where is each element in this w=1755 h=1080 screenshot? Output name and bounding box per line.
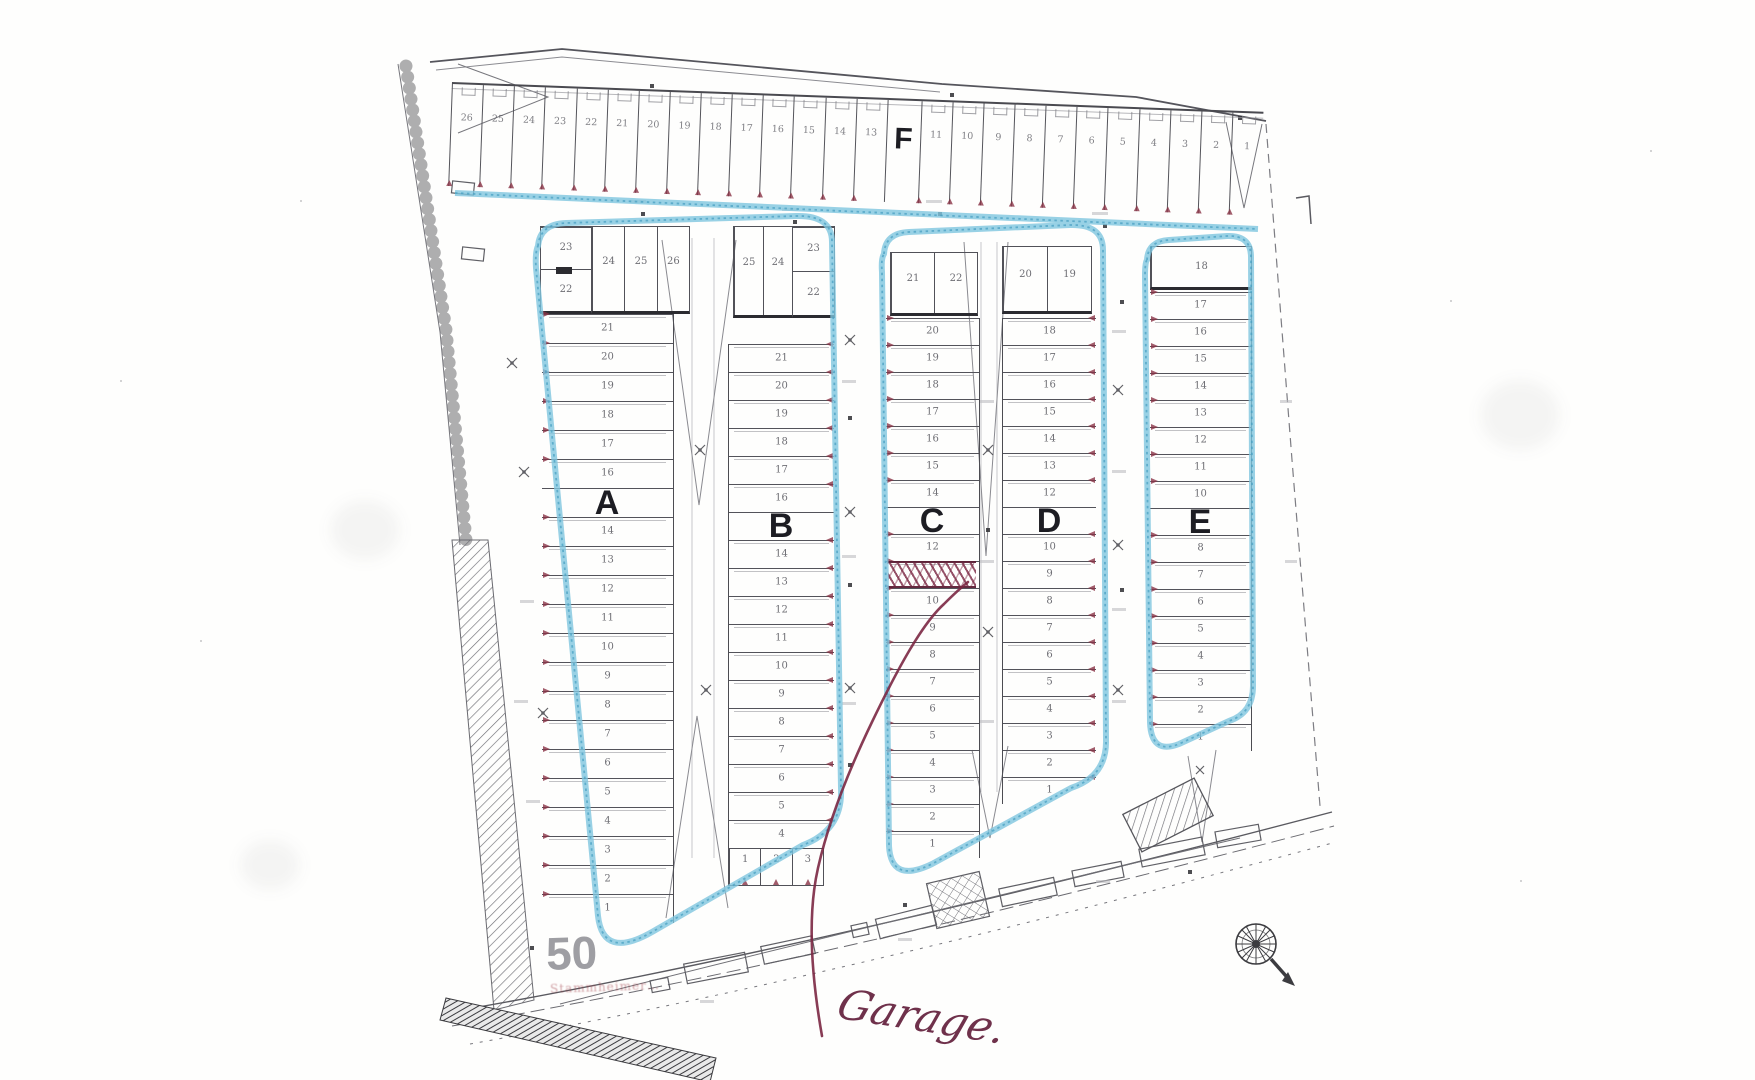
- stall-number: 7: [886, 677, 979, 688]
- parking-stall-row: 9: [1003, 561, 1096, 588]
- stall-number: 15: [1003, 407, 1096, 418]
- parking-stall-row: 8: [729, 708, 834, 736]
- parking-stall-row: 2: [886, 804, 979, 831]
- stall-number: 2: [1003, 758, 1096, 769]
- block-label-f: F: [894, 122, 914, 157]
- parking-stall-row: 2: [1003, 750, 1096, 777]
- parking-stall-row: 6: [1150, 589, 1251, 616]
- block-d-label-row: D: [1003, 507, 1096, 534]
- parking-stall-row: 1: [1003, 777, 1096, 804]
- parking-stall: 13: [853, 99, 888, 202]
- stall-number: 8: [542, 700, 673, 711]
- parking-stall-row: 21: [542, 314, 673, 343]
- parking-stall-row: 9: [729, 680, 834, 708]
- stall-number: 5: [1003, 677, 1096, 688]
- parking-stall-row: 7: [542, 720, 673, 749]
- stall-number: 20: [638, 119, 669, 131]
- block-c-column: 20191817161514 C 1210987654321: [886, 318, 980, 858]
- block-a-label-row: A: [542, 488, 673, 517]
- stall-number: 2: [886, 812, 979, 823]
- parking-stall-row: 12: [886, 534, 979, 561]
- parking-stall-row: 5: [886, 723, 979, 750]
- parking-stall-row: 10: [729, 652, 834, 680]
- parking-stall-row: 7: [1003, 615, 1096, 642]
- stall-number: 4: [886, 758, 979, 769]
- block-c-label-row: C: [886, 507, 979, 534]
- stall-number: 15: [794, 125, 825, 137]
- stall-number: 5: [729, 800, 834, 811]
- parking-stall-row: 12: [1150, 427, 1251, 454]
- stall-number: 16: [763, 123, 794, 135]
- block-a-top: 2322 242526: [540, 226, 690, 314]
- stall-number: 14: [886, 488, 979, 499]
- block-a-rows-upper: 212019181716: [542, 314, 673, 488]
- parking-stall-row: 18: [1003, 318, 1096, 345]
- stall-number: 20: [542, 352, 673, 363]
- stall-number: 3: [886, 785, 979, 796]
- block-d-rows-upper: 18171615141312: [1003, 318, 1096, 507]
- parking-stall: 16: [759, 95, 794, 198]
- parking-stall-row: 17: [729, 456, 834, 484]
- parking-stall-row: 18: [542, 401, 673, 430]
- stall-number: 18: [729, 436, 834, 447]
- parking-stall-row: 2: [1150, 697, 1251, 724]
- stall-number: 5: [542, 787, 673, 798]
- stall-number: 3: [793, 854, 823, 865]
- parking-stall: 10: [949, 102, 984, 205]
- block-e-rows-lower: 87654321: [1150, 535, 1251, 751]
- stall-number: 4: [1139, 137, 1170, 149]
- parking-stall: 22: [793, 271, 834, 315]
- stall-number: 23: [545, 115, 576, 127]
- stall-number: 3: [542, 845, 673, 856]
- parking-stall: 24: [510, 86, 545, 189]
- parking-stall-row: 13: [542, 546, 673, 575]
- parking-stall-row: 6: [886, 696, 979, 723]
- stall-number: 12: [542, 584, 673, 595]
- stall-number: 13: [856, 127, 887, 139]
- parking-stall-row: 17: [886, 399, 979, 426]
- street-name-faint: Stammheimer…: [550, 978, 660, 996]
- parking-stall-row: 8: [1150, 535, 1251, 562]
- handwritten-garage-note: Garage.: [831, 980, 1014, 1053]
- parking-stall-row: 18: [886, 372, 979, 399]
- parking-stall: 6: [1073, 107, 1108, 210]
- parking-stall-row: 12: [729, 596, 834, 624]
- stall-number: 6: [1076, 135, 1107, 147]
- stall-number: 18: [886, 380, 979, 391]
- stall-number: 1: [1003, 785, 1096, 796]
- house-number: 50: [545, 925, 598, 981]
- stall-number: 17: [731, 122, 762, 134]
- stall-number: 18: [542, 410, 673, 421]
- stall-number: 15: [1150, 354, 1251, 365]
- stall-number: 25: [483, 113, 514, 125]
- parking-stall-row: 5: [729, 792, 834, 820]
- stall-number: 12: [729, 604, 834, 615]
- parking-stall: 9: [980, 103, 1015, 206]
- parking-stall: 22: [541, 269, 591, 311]
- parking-stall-row: 11: [542, 604, 673, 633]
- parking-stall-row: 14: [1003, 426, 1096, 453]
- stall-number: 19: [542, 381, 673, 392]
- parking-stall: 5: [1104, 108, 1139, 211]
- stall-number: 26: [451, 112, 482, 124]
- stall-number: 21: [542, 323, 673, 334]
- parking-stall-row: 3: [542, 836, 673, 865]
- stall-number: 6: [729, 772, 834, 783]
- stall-number: 18: [1003, 326, 1096, 337]
- parking-stall: 22: [934, 253, 977, 313]
- block-label-e: E: [1189, 507, 1213, 538]
- stall-number: 9: [886, 623, 979, 634]
- stall-number: 1: [1150, 732, 1251, 743]
- parking-stall-row: 20: [886, 318, 979, 345]
- parking-stall: 19: [1047, 247, 1091, 311]
- stall-number: 22: [935, 273, 977, 284]
- stall-number: 7: [729, 744, 834, 755]
- stall-number: 2: [1150, 705, 1251, 716]
- parking-stall: 2: [760, 849, 791, 885]
- stall-number: 16: [542, 468, 673, 479]
- stall-number: 10: [542, 642, 673, 653]
- parking-stall: 3: [792, 849, 823, 885]
- parking-stall-row: 11: [729, 624, 834, 652]
- parking-stall-row: 12: [542, 575, 673, 604]
- parking-stall: 18: [1151, 247, 1251, 287]
- stall-number: 11: [1150, 462, 1251, 473]
- parking-stall: 23: [541, 227, 591, 269]
- stall-number: 1: [886, 839, 979, 850]
- block-e-label-row: E: [1150, 508, 1251, 535]
- stall-number: 6: [542, 758, 673, 769]
- stall-number: 4: [729, 828, 834, 839]
- parking-stall-row: 2: [542, 865, 673, 894]
- stall-number: 10: [1003, 542, 1096, 553]
- parking-stall-row: 8: [542, 691, 673, 720]
- scan-smudge: [240, 840, 300, 890]
- parking-stall-row: 3: [1150, 670, 1251, 697]
- stall-number: 11: [542, 613, 673, 624]
- parking-stall-row: 13: [1003, 453, 1096, 480]
- stall-number: 1: [730, 854, 760, 865]
- stall-number: 20: [729, 380, 834, 391]
- parking-stall: 23: [793, 227, 834, 271]
- parking-stall-row: 1: [1150, 724, 1251, 751]
- stall-number: 23: [793, 243, 834, 254]
- stall-number: 16: [1003, 380, 1096, 391]
- block-b-top-stalls: 2524: [733, 226, 793, 318]
- stall-number: 7: [1045, 134, 1076, 146]
- parking-stall: 20: [635, 91, 670, 194]
- stall-number: 17: [729, 464, 834, 475]
- stall-number: 4: [1003, 704, 1096, 715]
- parking-stall-row: 15: [1003, 399, 1096, 426]
- scan-speck: [300, 200, 302, 202]
- stall-number: 24: [514, 114, 545, 126]
- stall-number: 12: [886, 542, 979, 553]
- parking-stall-row: 7: [1150, 562, 1251, 589]
- block-label-d: D: [1037, 506, 1063, 537]
- parking-stall-row: 1: [542, 894, 673, 923]
- stall-number: 2: [1201, 139, 1232, 151]
- stall-number: 20: [886, 326, 979, 337]
- stall-number: 8: [1150, 543, 1251, 554]
- block-d-column: 18171615141312 D 10987654321: [1002, 318, 1096, 804]
- parking-stall-row: 15: [886, 453, 979, 480]
- block-b-rows-lower: 1413121110987654: [729, 540, 834, 848]
- parking-stall: 26: [448, 84, 483, 187]
- stall-number: 12: [1003, 488, 1096, 499]
- parking-stall-row: 7: [729, 736, 834, 764]
- stall-number: 7: [1003, 623, 1096, 634]
- stall-number: 3: [1003, 731, 1096, 742]
- stall-number: 23: [541, 242, 591, 253]
- scan-speck: [1520, 880, 1522, 882]
- stall-number: 14: [1003, 434, 1096, 445]
- parking-stall-row: 10: [1003, 534, 1096, 561]
- stall-number: 19: [669, 120, 700, 132]
- block-b-bottom-stalls: 123: [728, 848, 824, 886]
- parking-stall: 25: [479, 85, 514, 188]
- block-f-label-cell: F: [884, 100, 922, 203]
- scan-smudge: [1480, 380, 1560, 450]
- block-b-column: 212019181716 B 1413121110987654: [728, 344, 834, 848]
- parking-stall-row: 21: [729, 344, 834, 372]
- parking-stall: 7: [1042, 106, 1077, 209]
- block-b-label-row: B: [729, 512, 834, 540]
- block-label-a: A: [595, 488, 621, 519]
- stall-number: 9: [1003, 569, 1096, 580]
- parking-stall-row: 7: [886, 669, 979, 696]
- parking-stall-row: 20: [542, 343, 673, 372]
- stall-number: 18: [700, 121, 731, 133]
- parking-stall-row: 13: [729, 568, 834, 596]
- stall-number: 10: [952, 130, 983, 142]
- stall-number: 20: [1004, 269, 1047, 280]
- block-c-top-stalls: 2122: [890, 252, 978, 316]
- parking-stall-row: 13: [1150, 400, 1251, 427]
- block-b-top: 2524 2322: [733, 226, 835, 318]
- stall-number: 24: [764, 257, 792, 268]
- stall-number: 4: [542, 816, 673, 827]
- block-e-rows-upper: 1716151413121110: [1150, 292, 1251, 508]
- parking-stall: 3: [1166, 110, 1201, 213]
- stall-number: 17: [1003, 353, 1096, 364]
- stall-number: 5: [886, 731, 979, 742]
- stall-number: 16: [886, 434, 979, 445]
- stall-number: 13: [1003, 461, 1096, 472]
- stall-number: 19: [886, 353, 979, 364]
- scan-speck: [1650, 150, 1652, 152]
- stall-number: 8: [886, 650, 979, 661]
- stall-number: 5: [1150, 624, 1251, 635]
- stall-number: 21: [607, 118, 638, 130]
- stall-number: 17: [1150, 300, 1251, 311]
- block-b-corner: 2322: [793, 226, 835, 318]
- stall-number: 15: [886, 461, 979, 472]
- parking-stall: 4: [1135, 109, 1170, 212]
- scan-speck: [200, 640, 202, 642]
- stall-number: 2: [761, 854, 791, 865]
- parking-stall-row: 19: [729, 400, 834, 428]
- parking-stall-row: 14: [542, 517, 673, 546]
- parking-stall-row: 4: [886, 750, 979, 777]
- stall-number: 17: [886, 407, 979, 418]
- stall-number: 16: [1150, 327, 1251, 338]
- stall-number: 19: [729, 408, 834, 419]
- stall-number: 25: [625, 256, 656, 267]
- stall-number: 6: [886, 704, 979, 715]
- stall-number: 6: [1003, 650, 1096, 661]
- stall-number: 7: [542, 729, 673, 740]
- paved-area: [927, 872, 990, 929]
- scan-speck: [120, 380, 122, 382]
- stall-number: 22: [576, 117, 607, 129]
- parking-stall-row: 1: [886, 831, 979, 858]
- parking-stall-row: 4: [1150, 643, 1251, 670]
- parking-stall-row: 18: [729, 428, 834, 456]
- parking-stall-row: 17: [1003, 345, 1096, 372]
- stall-number: 9: [729, 688, 834, 699]
- stall-number: 9: [983, 132, 1014, 144]
- parking-stall-row: 14: [729, 540, 834, 568]
- parking-stall-row: 4: [729, 820, 834, 848]
- stall-number: 24: [593, 256, 624, 267]
- stall-number: 10: [886, 596, 979, 607]
- block-b-rows-upper: 212019181716: [729, 344, 834, 512]
- parking-stall: 18: [697, 93, 732, 196]
- parking-stall-row: 4: [542, 807, 673, 836]
- stall-number: 10: [1150, 489, 1251, 500]
- block-d-rows-lower: 10987654321: [1003, 534, 1096, 804]
- parking-stall: 17: [728, 94, 763, 197]
- stall-number: 11: [921, 129, 952, 141]
- parking-stall: 25: [734, 227, 763, 315]
- stall-number: 9: [542, 671, 673, 682]
- stall-number: 14: [729, 548, 834, 559]
- block-label-b: B: [769, 511, 795, 542]
- parking-stall-row: 19: [886, 345, 979, 372]
- parking-stall-row: 10: [886, 588, 979, 615]
- parking-stall: 11: [918, 101, 953, 204]
- parking-stall-row: 16: [1003, 372, 1096, 399]
- stall-number: 18: [1152, 261, 1251, 272]
- parking-stall-row: 15: [1150, 346, 1251, 373]
- block-e-column: 1716151413121110 E 87654321: [1150, 292, 1252, 751]
- stall-number: 21: [892, 273, 934, 284]
- block-f-cells-right: 1110987654321: [918, 101, 1264, 215]
- site-plan-scan: 2625242322212019181716151413 F 111098765…: [0, 0, 1755, 1080]
- parking-stall-row: 3: [1003, 723, 1096, 750]
- stall-number: 14: [825, 126, 856, 138]
- stall-number: 4: [1150, 651, 1251, 662]
- parking-stall: 8: [1011, 105, 1046, 208]
- parking-stall: 23: [542, 87, 577, 190]
- parking-stall-row: 6: [1003, 642, 1096, 669]
- parking-stall: 1: [729, 849, 760, 885]
- stall-number: 3: [1150, 678, 1251, 689]
- stall-number: 12: [1150, 435, 1251, 446]
- block-f-strip: 2625242322212019181716151413 F 111098765…: [448, 82, 1263, 216]
- stall-number: 6: [1150, 597, 1251, 608]
- stall-number: 21: [729, 352, 834, 363]
- stall-number: 14: [1150, 381, 1251, 392]
- stall-number: 17: [542, 439, 673, 450]
- stall-number: 10: [729, 660, 834, 671]
- stall-number: 8: [729, 716, 834, 727]
- parking-stall-row: 14: [1150, 373, 1251, 400]
- scan-speck: [1450, 300, 1452, 302]
- block-c-rows-upper: 20191817161514: [886, 318, 979, 507]
- stall-number: 2: [542, 874, 673, 885]
- parking-stall-row: 5: [542, 778, 673, 807]
- block-f-cells-left: 2625242322212019181716151413: [448, 84, 887, 202]
- retaining-wall: [440, 998, 716, 1080]
- parking-stall-row: 17: [542, 430, 673, 459]
- parking-stall: 24: [763, 227, 792, 315]
- parking-stall: 2: [1197, 111, 1232, 214]
- stall-number: 25: [735, 257, 763, 268]
- stall-number: 13: [729, 576, 834, 587]
- block-label-c: C: [920, 506, 946, 537]
- parking-stall-row: 17: [1150, 292, 1251, 319]
- stall-number: 8: [1003, 596, 1096, 607]
- parking-stall: 19: [666, 92, 701, 195]
- scan-smudge: [330, 500, 400, 560]
- outbuilding: [1123, 778, 1213, 852]
- parking-stall: 20: [1003, 247, 1047, 311]
- parking-stall-row: 20: [729, 372, 834, 400]
- stall-number: 1: [542, 903, 673, 914]
- parking-stall-row: 11: [1150, 454, 1251, 481]
- block-e-top-stalls: 18: [1150, 246, 1252, 290]
- stall-number: 16: [729, 492, 834, 503]
- parking-stall: 24: [592, 227, 624, 311]
- parking-stall-row: 16: [1150, 319, 1251, 346]
- stall-number: 13: [542, 555, 673, 566]
- marked-garage-stall-hatch: [888, 561, 976, 588]
- parking-stall: 22: [573, 89, 608, 192]
- parking-stall-row: 9: [542, 662, 673, 691]
- parking-stall-row: 6: [729, 764, 834, 792]
- parking-stall: 14: [821, 98, 856, 201]
- parking-stall: 15: [790, 97, 825, 200]
- stall-number: 5: [1107, 136, 1138, 148]
- block-a-rows-lower: 1413121110987654321: [542, 517, 673, 923]
- parking-stall-row: 4: [1003, 696, 1096, 723]
- parking-stall-row: 16: [886, 426, 979, 453]
- block-a-top-stalls: 242526: [592, 226, 690, 314]
- parking-stall-row: 8: [886, 642, 979, 669]
- parking-stall-row: 3: [886, 777, 979, 804]
- stall-number: 11: [729, 632, 834, 643]
- parking-stall-row: 5: [1150, 616, 1251, 643]
- parking-stall: 26: [657, 227, 689, 311]
- parking-stall-row: 19: [542, 372, 673, 401]
- stall-number: 3: [1170, 138, 1201, 150]
- stall-number: 13: [1150, 408, 1251, 419]
- stall-number: 8: [1014, 133, 1045, 145]
- parking-stall-row: 5: [1003, 669, 1096, 696]
- stall-number: 19: [1048, 269, 1091, 280]
- parking-stall-row: 9: [886, 615, 979, 642]
- stall-number: 14: [542, 526, 673, 537]
- stall-number: 7: [1150, 570, 1251, 581]
- stall-number: 1: [1232, 141, 1263, 153]
- parking-stall: 21: [891, 253, 934, 313]
- door-sill-mark: [556, 267, 572, 274]
